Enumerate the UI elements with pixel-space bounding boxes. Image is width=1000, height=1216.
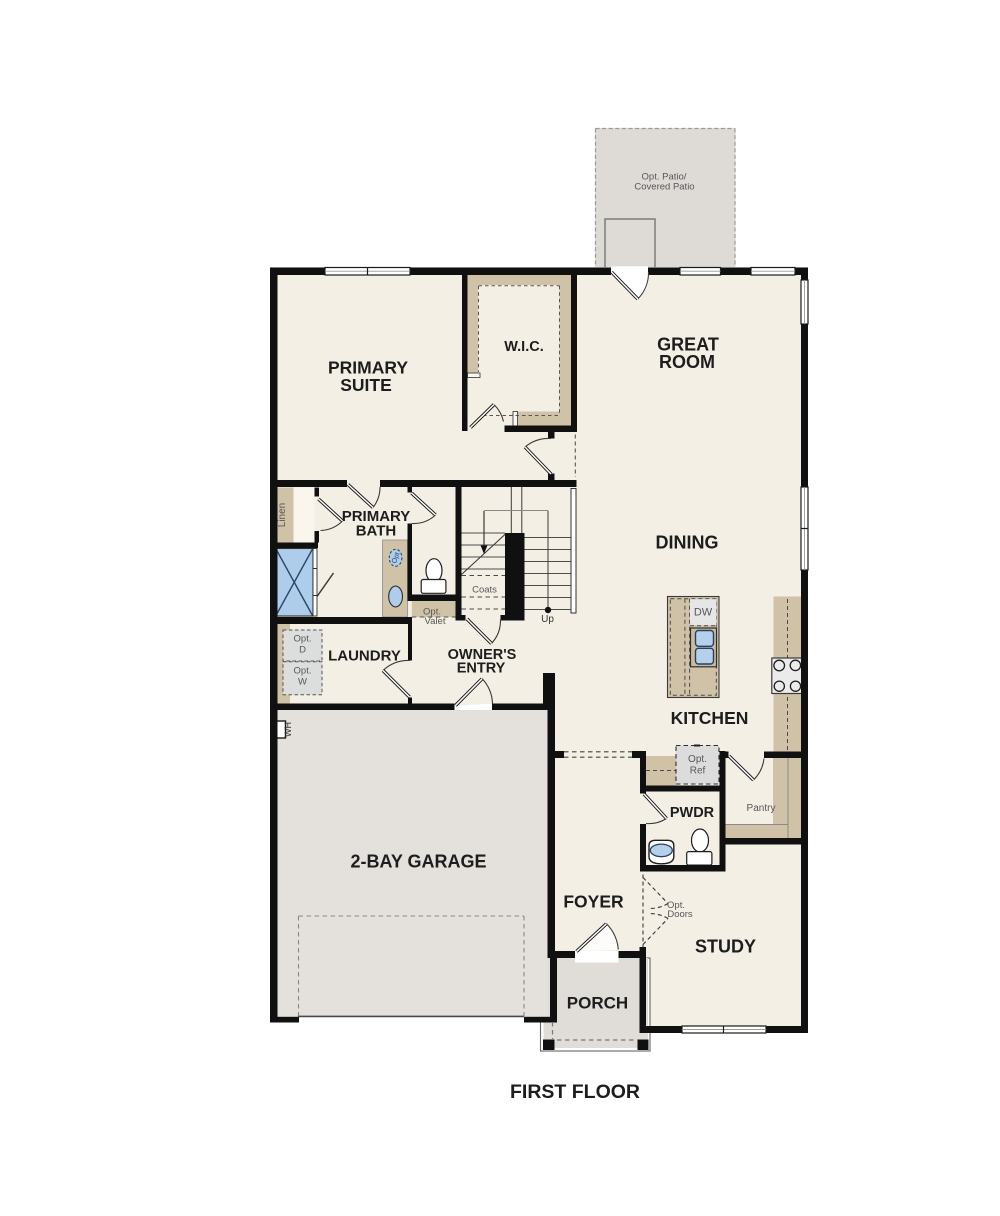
svg-text:LAUNDRY: LAUNDRY [328,647,401,664]
svg-text:Covered Patio: Covered Patio [634,182,694,193]
svg-text:PORCH: PORCH [567,994,628,1013]
svg-text:BATH: BATH [356,522,397,539]
svg-text:SUITE: SUITE [340,375,392,395]
svg-text:ENTRY: ENTRY [457,661,506,677]
svg-text:Valet: Valet [425,616,446,627]
svg-text:Ref: Ref [690,766,706,777]
svg-text:W.I.C.: W.I.C. [504,339,543,355]
svg-text:PWDR: PWDR [670,805,715,821]
svg-text:D: D [299,645,306,656]
svg-text:ROOM: ROOM [659,352,715,372]
svg-text:2-BAY GARAGE: 2-BAY GARAGE [350,852,486,872]
svg-text:Pantry: Pantry [747,803,776,814]
svg-text:Opt.: Opt. [688,754,707,765]
svg-text:FOYER: FOYER [563,891,624,911]
svg-text:WH: WH [283,722,293,737]
svg-text:FIRST FLOOR: FIRST FLOOR [510,1081,640,1103]
svg-text:DINING: DINING [656,533,719,553]
svg-text:Doors: Doors [667,909,693,920]
svg-text:Opt.: Opt. [294,666,312,677]
svg-text:Coats: Coats [472,584,497,595]
svg-text:Opt.: Opt. [294,634,312,645]
svg-text:Linen: Linen [277,503,288,527]
svg-text:W: W [298,677,307,688]
svg-text:STUDY: STUDY [695,937,756,957]
svg-text:DW: DW [694,607,713,619]
svg-text:KITCHEN: KITCHEN [671,708,749,728]
svg-text:Up: Up [541,614,554,625]
